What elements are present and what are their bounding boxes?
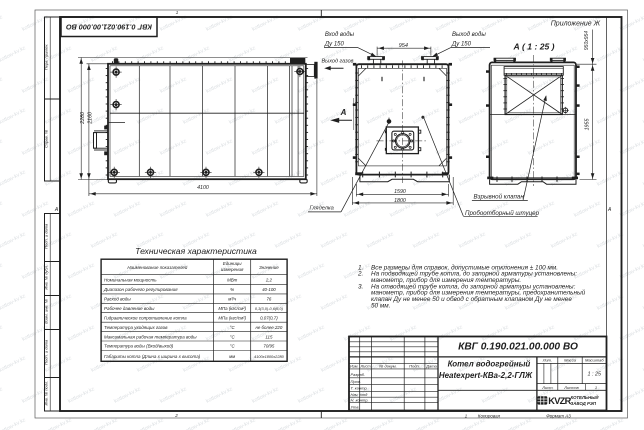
svg-text:Гидравлическое сопротивление к: Гидравлическое сопротивление котла (104, 315, 187, 320)
svg-text:МПа (кгс/см²): МПа (кгс/см²) (218, 306, 246, 311)
svg-text:А: А (607, 207, 612, 213)
svg-text:Нач. отд: Нач. отд (351, 392, 369, 397)
svg-text:1955: 1955 (584, 119, 590, 131)
svg-text:Ду 150: Ду 150 (451, 42, 472, 48)
svg-text:Масштаб: Масштаб (585, 358, 604, 363)
svg-text:950х954: 950х954 (584, 31, 590, 50)
svg-text:Температура воды (Вход/выход): Температура воды (Вход/выход) (104, 344, 174, 349)
svg-text:МПа (кгс/см²): МПа (кгс/см²) (218, 315, 246, 320)
svg-text:Пров.: Пров. (351, 379, 362, 384)
svg-text:не более 220: не более 220 (255, 325, 282, 330)
svg-text:Масса: Масса (564, 358, 577, 363)
svg-text:Формат А3: Формат А3 (546, 413, 571, 418)
svg-text:мм: мм (229, 354, 235, 359)
svg-text:%: % (230, 287, 234, 292)
svg-text:3.: 3. (358, 283, 363, 290)
svg-text:1 : 25: 1 : 25 (588, 372, 602, 378)
svg-text:Пробоотборный штуцер: Пробоотборный штуцер (465, 210, 540, 217)
svg-text:Подп. и дата: Подп. и дата (44, 339, 49, 365)
svg-text:Выход воды: Выход воды (452, 32, 486, 38)
svg-text:Лист: Лист (359, 363, 371, 368)
svg-text:Н. контр.: Н. контр. (351, 397, 369, 402)
svg-text:76: 76 (266, 297, 271, 302)
svg-text:КВГ 0.190.021.00.000 ВО: КВГ 0.190.021.00.000 ВО (66, 22, 152, 31)
svg-text:Единицы: Единицы (223, 261, 243, 266)
svg-text:Перв. примен.: Перв. примен. (44, 44, 49, 71)
svg-text:Лит.: Лит. (542, 358, 552, 363)
svg-text:Heatexpert-КВа-2,2-ГЛЖ: Heatexpert-КВа-2,2-ГЛЖ (439, 371, 533, 380)
svg-text:Техническая характеристика: Техническая характеристика (135, 246, 257, 256)
svg-text:Справ. №: Справ. № (44, 129, 49, 148)
svg-text:°С: °С (230, 344, 236, 349)
svg-text:4100х1800х2280: 4100х1800х2280 (254, 354, 285, 359)
svg-text:954: 954 (399, 43, 408, 49)
svg-text:№ докум.: № докум. (379, 363, 397, 368)
svg-text:Лист: Лист (541, 385, 553, 390)
svg-text:Вход воды: Вход воды (325, 32, 355, 38)
svg-text:А ( 1 : 25 ): А ( 1 : 25 ) (512, 41, 554, 51)
svg-text:А: А (340, 108, 347, 117)
svg-text:Температура уходящих газов: Температура уходящих газов (104, 325, 168, 330)
svg-text:Изм.: Изм. (350, 363, 359, 368)
svg-text:Инв. № дубл.: Инв. № дубл. (44, 265, 49, 290)
svg-text:Котел водогрейный: Котел водогрейный (448, 360, 531, 369)
svg-text:Наименование показателей: Наименование показателей (127, 264, 188, 270)
svg-text:КОТЕЛЬНЫЙ: КОТЕЛЬНЫЙ (571, 395, 600, 400)
svg-text:1590: 1590 (394, 189, 406, 195)
svg-text:°С: °С (230, 334, 236, 339)
svg-text:4100: 4100 (197, 185, 209, 191)
svg-text:Копировал: Копировал (478, 413, 501, 418)
svg-text:Значение: Значение (259, 265, 279, 270)
svg-text:2: 2 (174, 413, 178, 418)
svg-text:70/95: 70/95 (263, 344, 275, 349)
svg-text:Взрывной клапан: Взрывной клапан (474, 194, 525, 201)
svg-text:Номинальная мощность: Номинальная мощность (104, 278, 157, 283)
svg-text:Подп. и дата: Подп. и дата (44, 223, 49, 249)
svg-text:клапан Ду не менее 50 и обвод: клапан Ду не менее 50 и обвод с обратным… (371, 295, 572, 303)
svg-text:50 мм.: 50 мм. (371, 302, 390, 309)
svg-text:Разраб.: Разраб. (351, 372, 365, 377)
svg-text:ЗАВОД РЭП: ЗАВОД РЭП (571, 401, 597, 406)
svg-text:МВт: МВт (227, 278, 238, 283)
svg-text:0,07(0,7): 0,07(0,7) (260, 315, 278, 320)
svg-text:2.: 2. (357, 271, 363, 278)
svg-text:КВГ 0.190.021.00.000 ВО: КВГ 0.190.021.00.000 ВО (458, 342, 578, 353)
svg-text:Взам. инв. №: Взам. инв. № (44, 298, 49, 323)
svg-text:Приложение Ж: Приложение Ж (551, 21, 601, 28)
svg-text:Расход воды: Расход воды (104, 297, 131, 302)
svg-text:Диапазон рабочего регулировани: Диапазон рабочего регулирования (103, 287, 178, 292)
svg-text:Подп.: Подп. (409, 363, 420, 368)
svg-text:0,3(3,0)-0,6(6,0): 0,3(3,0)-0,6(6,0) (255, 306, 284, 311)
svg-text:Листов: Листов (563, 385, 579, 390)
svg-text:Максимальная рабочая температу: Максимальная рабочая температура воды (104, 334, 197, 339)
svg-text:Рабочее давление воды: Рабочее давление воды (104, 306, 155, 311)
svg-text:°С: °С (230, 325, 236, 330)
svg-text:Т. контр.: Т. контр. (351, 386, 368, 391)
svg-text:Инв. № подл.: Инв. № подл. (44, 381, 49, 406)
svg-text:2160: 2160 (88, 112, 94, 125)
svg-text:2,2: 2,2 (265, 278, 273, 283)
svg-text:м³/ч: м³/ч (228, 297, 237, 302)
svg-text:измерения: измерения (221, 267, 244, 272)
svg-text:115: 115 (265, 334, 273, 339)
svg-text:Ду 150: Ду 150 (324, 42, 345, 48)
svg-text:Утв.: Утв. (351, 404, 360, 409)
svg-text:KVZR: KVZR (548, 396, 571, 406)
svg-text:1: 1 (595, 385, 597, 390)
svg-text:Габариты котла (Длина х ширина: Габариты котла (Длина х ширина х высота) (104, 354, 201, 359)
svg-text:1800: 1800 (394, 198, 406, 204)
svg-text:Выход газов: Выход газов (322, 59, 354, 65)
svg-text:2280: 2280 (80, 112, 86, 125)
svg-text:Гляделка: Гляделка (310, 205, 334, 211)
svg-text:А: А (54, 207, 59, 213)
svg-text:Дата: Дата (425, 363, 437, 368)
svg-text:40-100: 40-100 (262, 287, 276, 292)
